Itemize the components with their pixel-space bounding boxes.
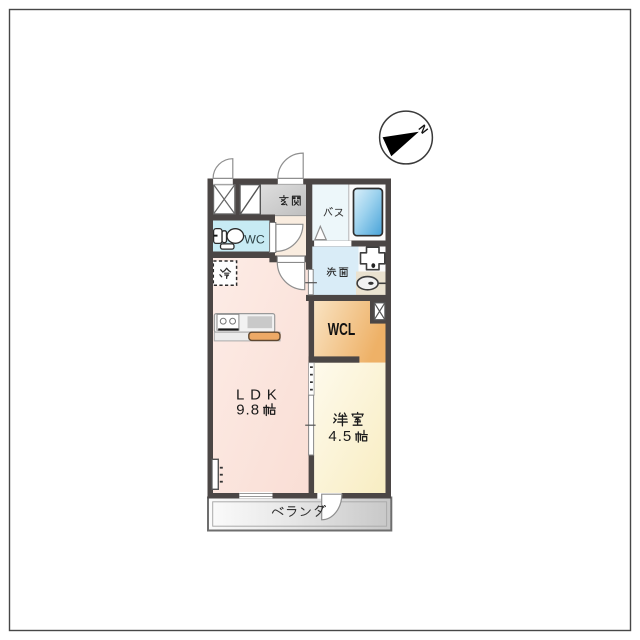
svg-text:4.5: 4.5 <box>328 428 352 445</box>
svg-text:WCL: WCL <box>328 319 356 339</box>
svg-text:WC: WC <box>244 234 265 246</box>
svg-text:9.8: 9.8 <box>236 402 260 419</box>
